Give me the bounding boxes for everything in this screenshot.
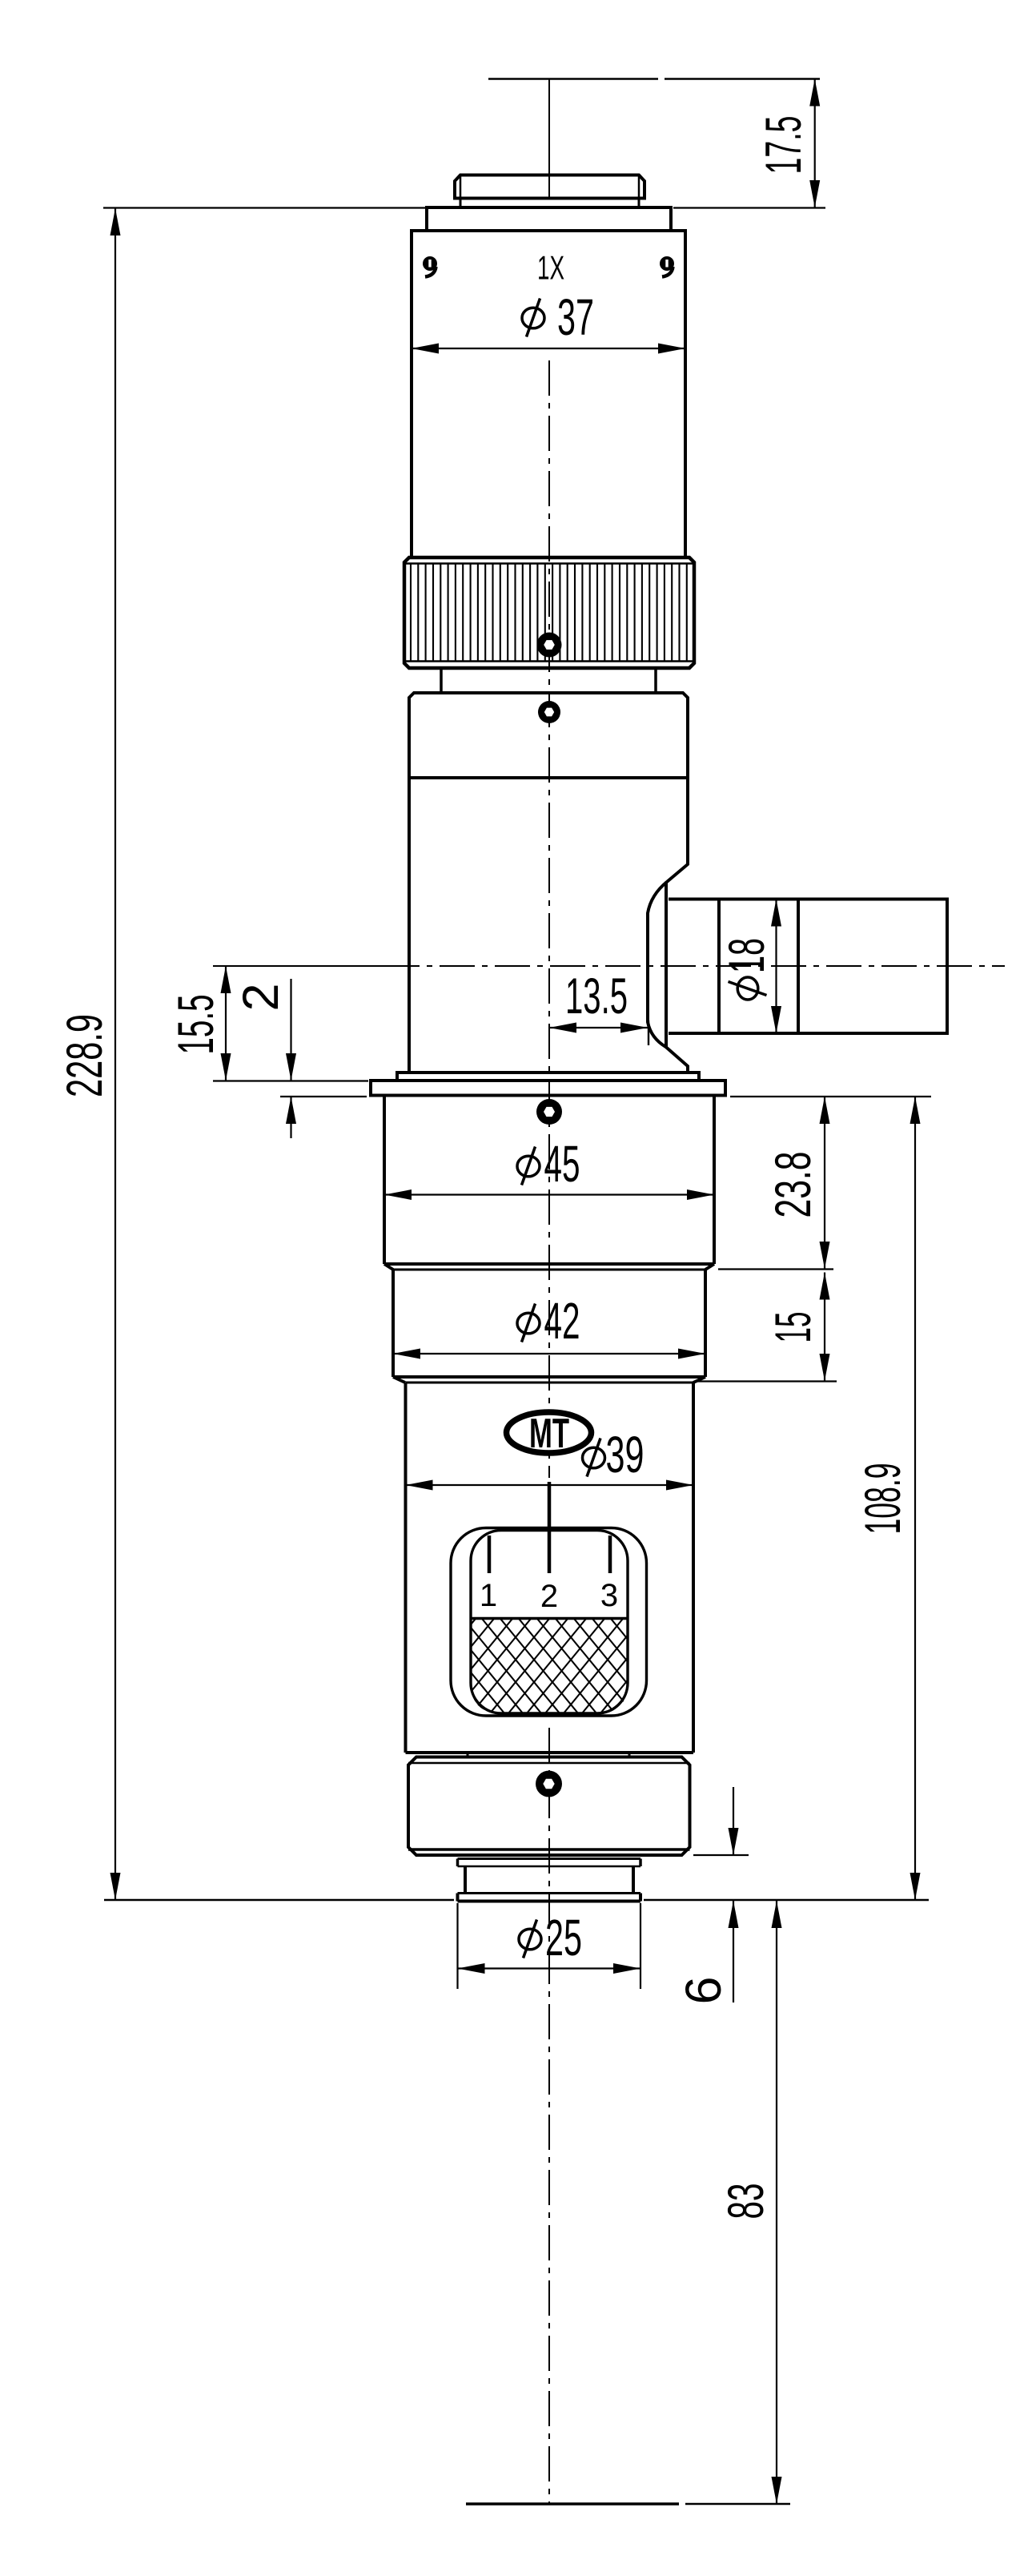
svg-text:17.5: 17.5: [756, 116, 812, 175]
svg-text:2: 2: [540, 1579, 558, 1614]
svg-text:MT: MT: [529, 1411, 569, 1457]
svg-text:15: 15: [765, 1312, 821, 1343]
svg-text:42: 42: [544, 1292, 580, 1350]
svg-text:228.9: 228.9: [57, 1014, 113, 1097]
svg-text:45: 45: [544, 1135, 580, 1193]
svg-text:13.5: 13.5: [565, 968, 628, 1024]
svg-text:1: 1: [480, 1578, 497, 1613]
svg-text:39: 39: [606, 1426, 644, 1483]
svg-text:6: 6: [676, 1976, 732, 2004]
svg-text:1X: 1X: [537, 249, 564, 287]
svg-text:15.5: 15.5: [168, 995, 224, 1055]
svg-text:37: 37: [557, 288, 594, 346]
svg-text:18: 18: [719, 938, 775, 973]
svg-text:108.9: 108.9: [855, 1463, 911, 1535]
svg-text:23.8: 23.8: [765, 1152, 821, 1218]
svg-text:83: 83: [718, 2184, 774, 2220]
svg-text:3: 3: [600, 1578, 618, 1613]
svg-text:2: 2: [233, 983, 289, 1011]
svg-text:25: 25: [545, 1909, 582, 1966]
